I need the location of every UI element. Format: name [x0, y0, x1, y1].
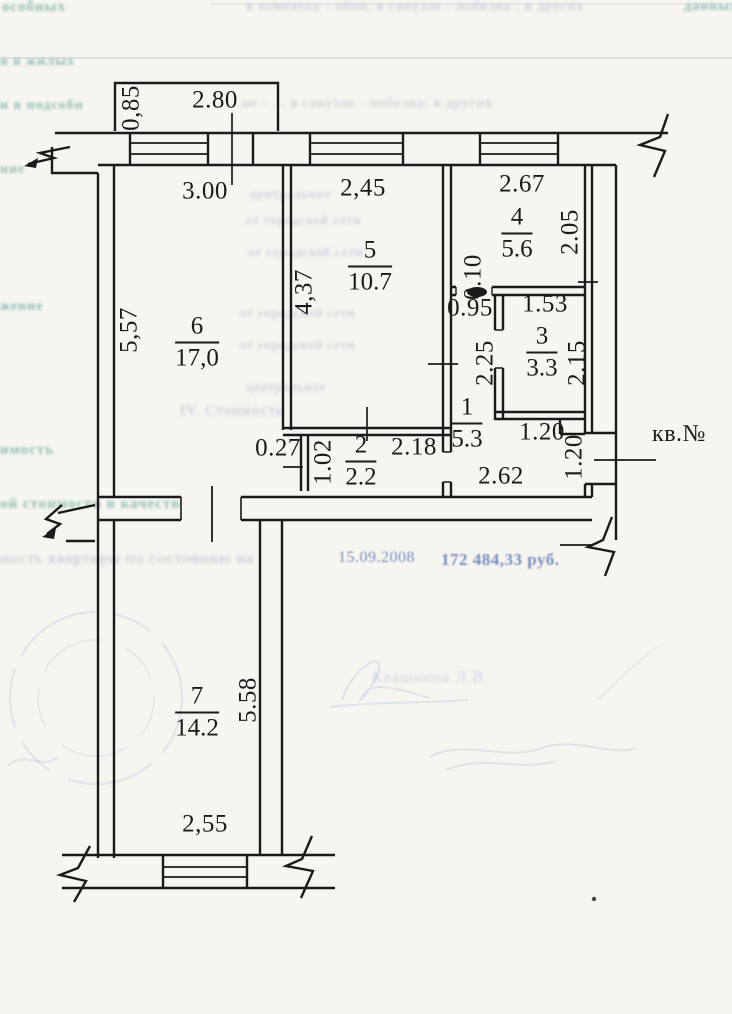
dimension-label: 2.80 [192, 88, 238, 113]
room-number: 2 [345, 433, 376, 463]
room-area: 17,0 [175, 343, 219, 371]
dimension-label: 2.15 [565, 340, 590, 386]
apartment-number-label: кв.№ [652, 422, 706, 446]
room-label: 33.3 [526, 324, 557, 381]
room-label: 510.7 [348, 238, 392, 295]
dimension-label: 1.53 [522, 292, 568, 317]
room-area: 5.3 [451, 424, 482, 452]
room-number: 5 [348, 238, 392, 268]
room-area: 2.2 [345, 462, 376, 490]
dimension-label: 3.00 [182, 179, 228, 204]
dimension-label: 2.05 [558, 209, 583, 255]
dimension-label: 1.20 [519, 420, 565, 445]
room-number: 3 [526, 324, 557, 354]
room-label: 45.6 [501, 205, 532, 262]
dimension-label: 2,55 [182, 812, 228, 837]
dimension-label: 1.02 [311, 439, 336, 485]
room-area: 5.6 [501, 234, 532, 262]
dimension-label: 2,45 [340, 176, 386, 201]
room-label: 714.2 [175, 684, 219, 741]
dimension-label: 2.18 [391, 435, 437, 460]
dimension-label: 2.25 [473, 340, 498, 386]
dimension-label: 5.58 [236, 677, 261, 723]
room-label: 617,0 [175, 314, 219, 371]
dimension-label: 0.27 [255, 436, 301, 461]
room-label: 22.2 [345, 433, 376, 490]
room-area: 3.3 [526, 353, 557, 381]
room-number: 1 [451, 395, 482, 425]
room-label: 15.3 [451, 395, 482, 452]
room-area: 10.7 [348, 267, 392, 295]
dimension-label: 0.10 [461, 254, 486, 300]
dimension-label: 2.67 [499, 172, 545, 197]
dimension-label: 0.95 [447, 296, 493, 321]
room-number: 7 [175, 684, 219, 714]
dimension-label: 0,85 [119, 85, 144, 131]
plan-labels-layer: 0,852.803.002,452.674,375,572.050.100.95… [0, 0, 732, 1014]
dimension-label: 5,57 [117, 307, 142, 353]
dimension-label: 1.20 [562, 434, 587, 480]
dimension-label: 2.62 [478, 464, 524, 489]
dimension-label: 4,37 [292, 269, 317, 315]
room-number: 6 [175, 314, 219, 344]
room-number: 4 [501, 205, 532, 235]
scanned-floor-plan-page: { "canvas": { "width": 732, "height": 10… [0, 0, 732, 1014]
room-area: 14.2 [175, 713, 219, 741]
